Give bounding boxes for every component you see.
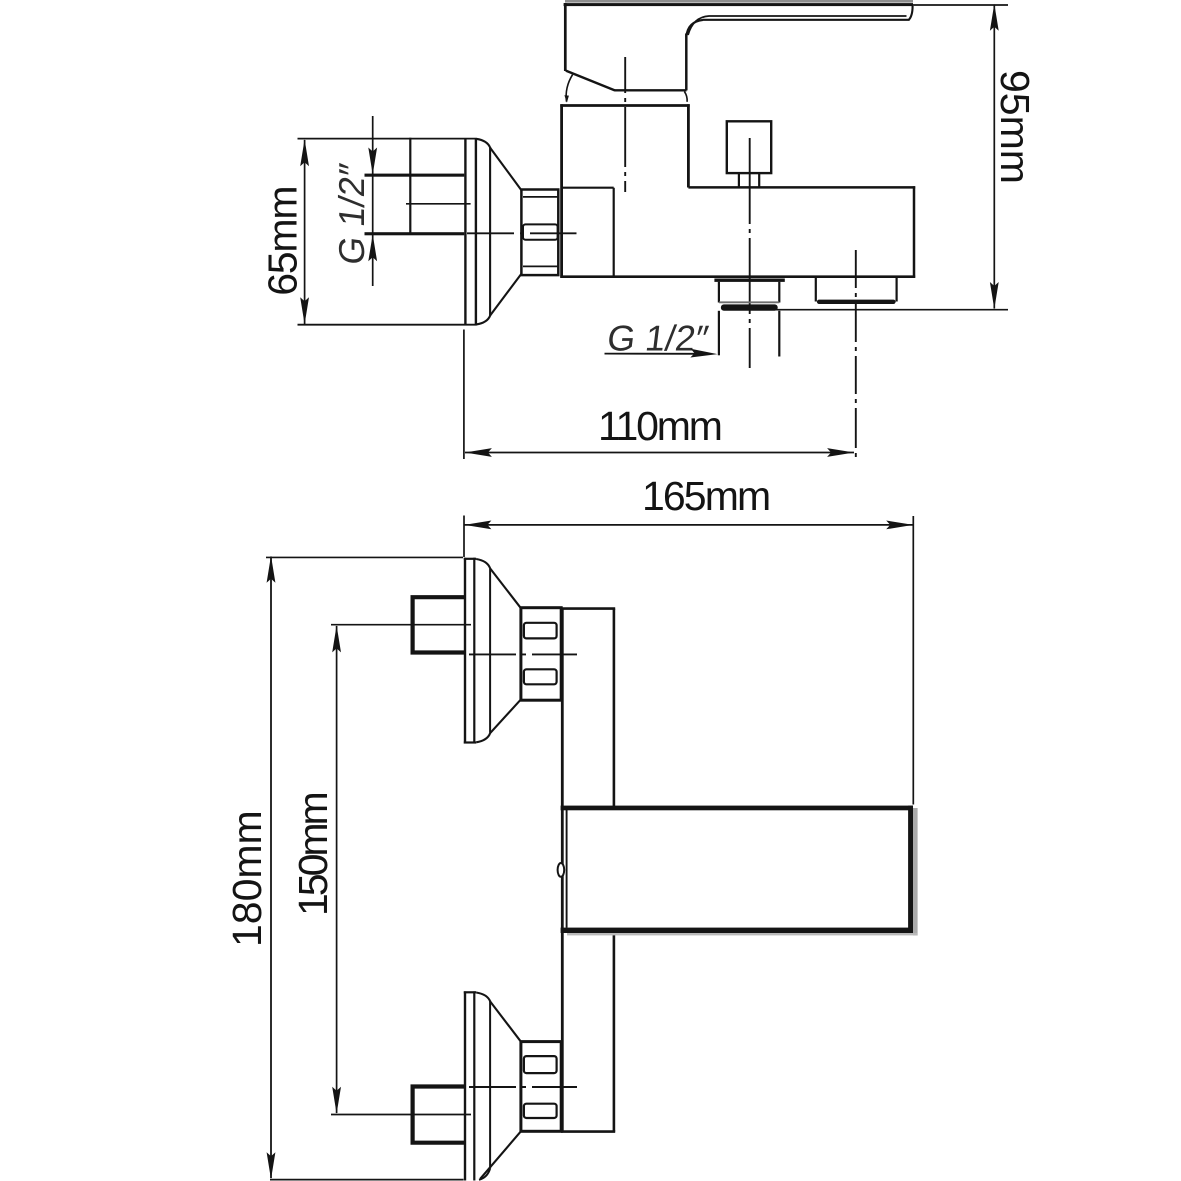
svg-text:95mm: 95mm [992,70,1038,184]
svg-text:180mm: 180mm [224,810,270,947]
svg-text:110mm: 110mm [598,403,721,449]
svg-text:G 1/2″: G 1/2″ [331,161,372,267]
svg-text:65mm: 65mm [260,187,306,296]
svg-text:165mm: 165mm [642,473,769,519]
svg-text:150mm: 150mm [290,793,336,916]
